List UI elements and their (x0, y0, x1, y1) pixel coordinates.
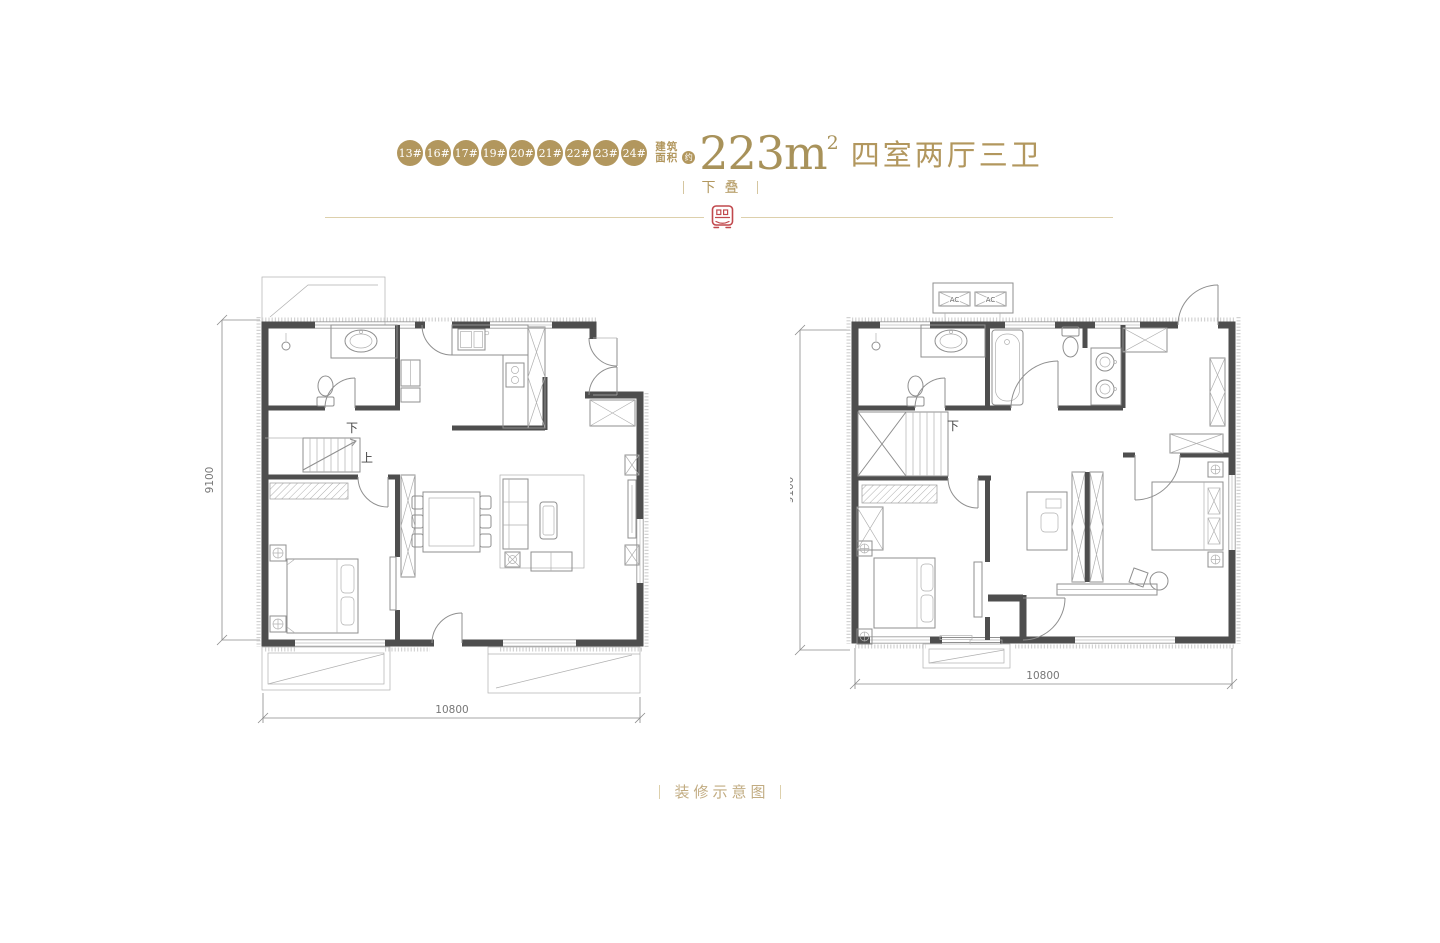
balcony-corner-door (1023, 598, 1065, 640)
bedroom-right-furniture (1152, 462, 1223, 567)
ac-label: AC (950, 296, 960, 304)
staircase (265, 438, 360, 472)
stairs-down-label: 下 (947, 419, 959, 433)
building-badge: 19# (481, 140, 507, 166)
floor-plan-right: 9100 10800 AC AC (790, 250, 1250, 690)
level-tag-bar (757, 181, 758, 194)
building-badge: 23# (593, 140, 619, 166)
nightstand-icon (1208, 552, 1223, 567)
bedroom-door (948, 478, 978, 508)
dimension-height-label: 9100 (790, 477, 796, 504)
hall-closet-top (1123, 328, 1167, 352)
bedroom-left-furniture (857, 541, 935, 644)
sink-icon (921, 325, 985, 357)
building-badge: 20# (509, 140, 535, 166)
closet-above-bed (1170, 434, 1223, 453)
dimension-width-label: 10800 (435, 704, 468, 716)
nightstand-icon (857, 541, 872, 556)
rug (500, 475, 584, 568)
bedroom-right-door (1135, 455, 1180, 500)
closet-left (857, 507, 883, 550)
dimension-height-label: 9100 (204, 467, 216, 494)
coffee-table-icon (540, 502, 557, 539)
area-value: 223m2 (699, 130, 839, 176)
nightstand-icon (270, 616, 286, 632)
building-badge: 24# (621, 140, 647, 166)
sink-icon (331, 325, 397, 358)
kitchen-sink-icon (458, 329, 489, 350)
hall-closet (590, 400, 639, 565)
stairs-down-label: 下 (346, 421, 358, 435)
chair-icon (1041, 513, 1058, 532)
building-badge: 13# (397, 140, 423, 166)
sofa-icon (503, 479, 528, 549)
bathroom (282, 325, 397, 408)
floor-plan-left: 9100 10800 (200, 255, 660, 725)
center-shafts (1072, 472, 1103, 582)
left-vertical-dimension: 9100 (204, 315, 260, 645)
nightstand-icon (1208, 462, 1223, 477)
entry-cabinets (401, 360, 420, 402)
staircase (858, 412, 948, 476)
wardrobe (270, 483, 348, 499)
area-label: 建筑 面积 (655, 142, 678, 165)
balcony-door (432, 613, 462, 643)
toilet-icon (1062, 327, 1079, 357)
area-exponent: 2 (827, 132, 839, 154)
nightstand-icon (270, 545, 286, 561)
left-horizontal-dimension: 10800 (258, 693, 645, 723)
bed-icon (287, 559, 358, 633)
building-badge: 17# (453, 140, 479, 166)
footer-caption: 装修示意图 (0, 781, 1440, 802)
ac-label: AC (986, 296, 996, 304)
stove-icon (506, 363, 524, 387)
bathroom-2 (992, 327, 1121, 408)
brand-seal-icon (710, 202, 735, 231)
balcony-slider (940, 636, 1002, 645)
footer-caption-text: 装修示意图 (670, 781, 769, 802)
layout-type-label: 四室两厅三卫 (851, 132, 1043, 174)
bathroom-1 (872, 325, 985, 408)
double-sink-icon (1091, 348, 1121, 405)
dimension-width-label: 10800 (1026, 670, 1059, 682)
stairs-up-label: 上 (361, 451, 373, 465)
level-tag-text: 下叠 (693, 177, 748, 197)
plan-title: 13# 16# 17# 19# 20# 21# 22# 23# 24# 建筑 面… (0, 130, 1440, 176)
balconies (262, 647, 640, 693)
dining-set (412, 492, 491, 552)
right-horizontal-dimension: 10800 (850, 648, 1237, 689)
footer-caption-bar (659, 785, 660, 799)
area-label-bottom: 面积 (655, 153, 678, 165)
shower-icon (872, 342, 880, 350)
shower-icon (282, 342, 290, 350)
bed-icon (874, 558, 935, 628)
building-badge: 22# (565, 140, 591, 166)
bedroom-door (358, 477, 388, 507)
study-furniture (1027, 492, 1067, 550)
entry-door (422, 325, 452, 355)
building-badge: 21# (537, 140, 563, 166)
wardrobe (862, 485, 937, 503)
floor-plan-page: 13# 16# 17# 19# 20# 21# 22# 23# 24# 建筑 面… (0, 0, 1440, 943)
wall-closet-right (1210, 358, 1225, 426)
divider-left (325, 217, 704, 218)
level-tag-bar (683, 181, 684, 194)
kitchen (452, 325, 528, 428)
approx-badge: 约 (682, 151, 695, 164)
low-cabinet (1057, 584, 1157, 595)
right-vertical-dimension: 9100 (790, 325, 850, 655)
footer-caption-bar (780, 785, 781, 799)
divider-right (741, 217, 1113, 218)
sliding-door-panel (974, 562, 982, 617)
side-table-icon (505, 552, 520, 567)
bathtub-icon (992, 330, 1023, 405)
bedroom-furniture (270, 545, 358, 633)
building-badge: 16# (425, 140, 451, 166)
duct-shaft-2 (401, 475, 415, 577)
bed-icon (1152, 482, 1223, 550)
level-tag: 下叠 (0, 177, 1440, 197)
sliding-door-panel (390, 557, 396, 610)
lounge-chair-and-table (1129, 568, 1168, 590)
double-door (589, 338, 617, 395)
living-room-furniture (500, 475, 584, 571)
balcony (923, 644, 1010, 668)
duct-shaft (528, 327, 545, 428)
